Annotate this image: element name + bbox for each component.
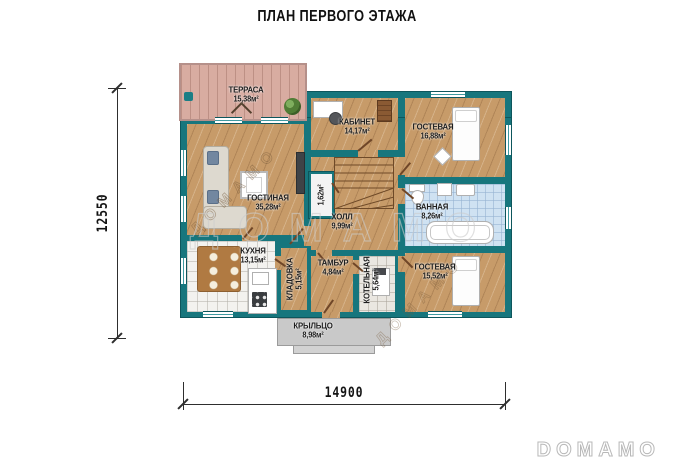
dimension-line-horizontal	[183, 404, 505, 405]
room-label-boiler: КОТЕЛЬНАЯ 5,64м²	[361, 256, 380, 303]
room-label-study: КАБИНЕТ 14,17м²	[339, 116, 375, 135]
window	[505, 125, 512, 155]
floor-plan-page: ПЛАН ПЕРВОГО ЭТАЖА	[0, 0, 674, 470]
plant-icon	[284, 98, 301, 115]
window	[180, 258, 187, 284]
dimension-extension	[183, 382, 184, 410]
tv-cabinet	[296, 152, 305, 194]
kitchen-sink	[252, 272, 269, 285]
room-label-storage: КЛАДОВКА 5,15м²	[284, 258, 303, 300]
window	[261, 117, 288, 124]
room-label-living: ГОСТИНАЯ 35,28м²	[247, 192, 289, 211]
domamo-logo: DOMAMO	[537, 439, 660, 462]
door-opening	[358, 150, 378, 157]
room-label-vestibule: ТАМБУР 4,84м²	[318, 257, 349, 276]
window	[203, 311, 233, 318]
bookshelf	[377, 100, 392, 122]
room-label-porch: КРЫЛЬЦО 8,98м²	[293, 320, 332, 339]
room-label-guest2: ГОСТЕВАЯ 15,52м²	[415, 261, 456, 280]
dimension-value-vertical: 12550	[95, 194, 111, 233]
bed	[452, 107, 480, 161]
stove-icon	[252, 292, 267, 307]
sink	[456, 184, 475, 196]
dimension-extension	[505, 382, 506, 410]
sofa-pillow	[207, 151, 219, 165]
window	[180, 150, 187, 176]
washing-machine	[437, 183, 452, 196]
page-title: ПЛАН ПЕРВОГО ЭТАЖА	[67, 8, 606, 26]
staircase	[334, 157, 394, 209]
room-label-closet: 1,62м²	[316, 184, 325, 205]
room-label-guest1: ГОСТЕВАЯ 16,88м²	[413, 121, 454, 140]
window	[431, 91, 465, 98]
dimension-line-vertical	[117, 88, 118, 338]
room-label-bath: ВАННАЯ 8,26м²	[416, 201, 448, 220]
room-label-kitchen: КУХНЯ 13,15м²	[240, 245, 265, 264]
dining-table	[197, 246, 241, 292]
bed-pillow	[455, 110, 477, 122]
room-label-hall: ХОЛЛ 9,99м²	[331, 211, 352, 230]
room-label-terrace: ТЕРРАСА 15,38м²	[228, 84, 263, 103]
window	[428, 311, 462, 318]
terrace-fixture	[184, 92, 193, 101]
